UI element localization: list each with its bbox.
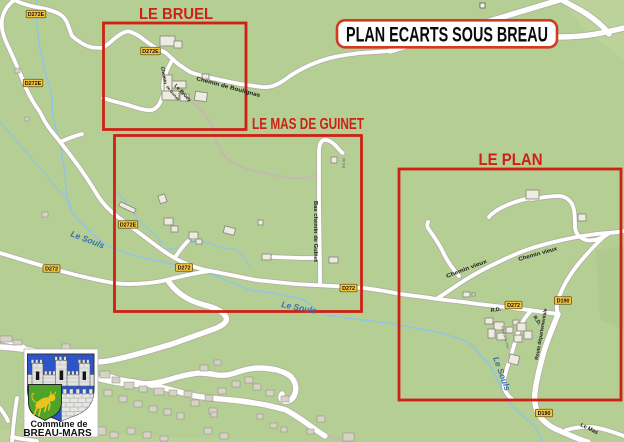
svg-text:LE BRUEL: LE BRUEL [139, 6, 213, 23]
svg-text:D190: D190 [538, 411, 551, 417]
svg-text:D272: D272 [45, 267, 58, 273]
svg-text:D272E: D272E [25, 81, 42, 87]
svg-text:Bas chemin de Guinet: Bas chemin de Guinet [312, 201, 318, 262]
svg-text:BREAU-MARS: BREAU-MARS [23, 428, 92, 439]
svg-text:PLAN ECARTS SOUS BREAU: PLAN ECARTS SOUS BREAU [346, 24, 548, 47]
svg-text:D272: D272 [178, 266, 191, 272]
svg-text:D272: D272 [507, 303, 520, 309]
svg-text:D190: D190 [557, 299, 570, 305]
svg-text:D272E: D272E [28, 12, 45, 18]
svg-text:LE MAS DE GUINET: LE MAS DE GUINET [252, 116, 364, 133]
svg-text:D272: D272 [342, 286, 355, 292]
svg-text:D272E: D272E [120, 223, 137, 229]
svg-text:D272E: D272E [142, 49, 159, 55]
svg-text:LE PLAN: LE PLAN [479, 151, 543, 169]
svg-text:BS 84: BS 84 [342, 158, 346, 168]
